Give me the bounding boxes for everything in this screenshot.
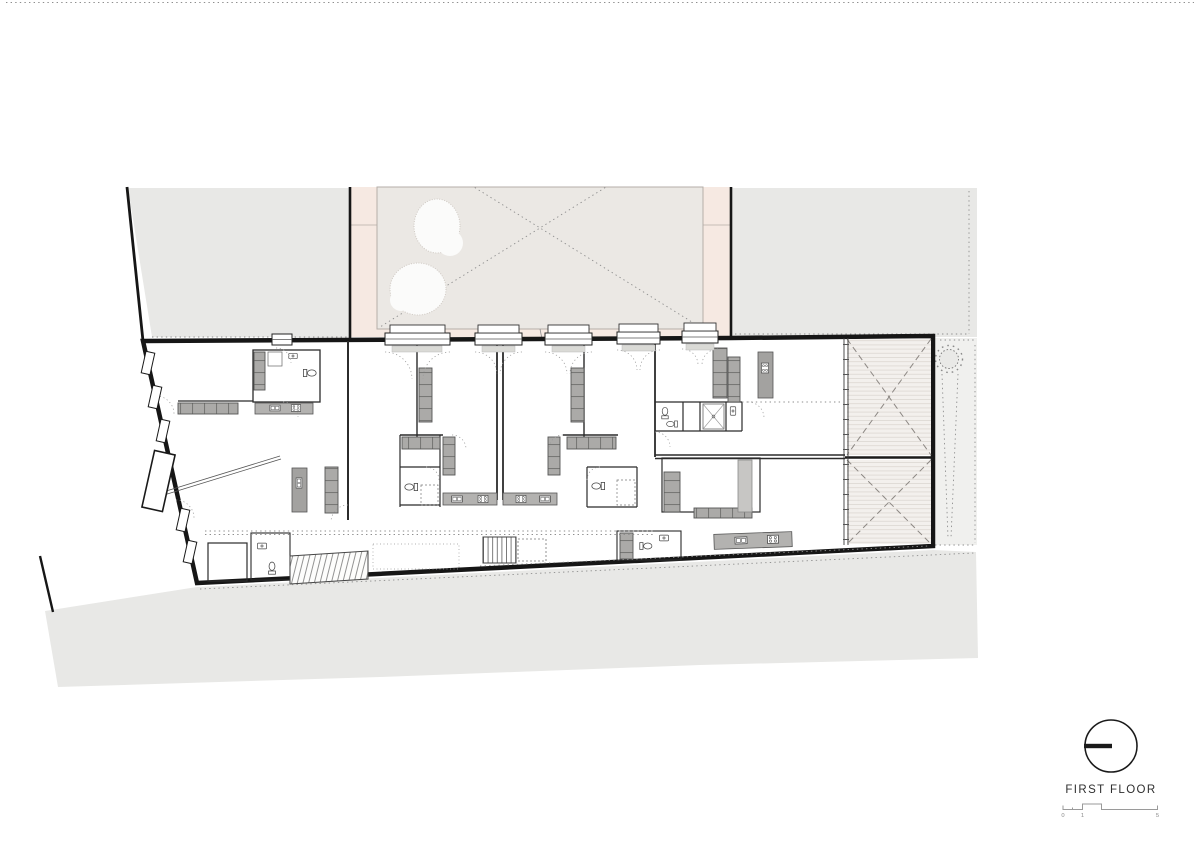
wardrobe <box>664 472 680 512</box>
terraces <box>844 338 933 545</box>
floor-label: FIRST FLOOR <box>1065 784 1156 796</box>
wardrobe <box>620 533 633 559</box>
basin-icon <box>289 353 298 358</box>
window-opening <box>545 325 592 352</box>
toilet-icon <box>405 483 418 490</box>
wardrobe-band <box>178 403 238 414</box>
scale-tick-0: 0 <box>1061 813 1064 819</box>
window-opening <box>682 323 718 350</box>
tall-cabinet <box>728 357 740 402</box>
kitchen-island <box>292 468 307 512</box>
basin-icon <box>730 407 735 416</box>
stair-secondary <box>483 537 516 563</box>
floor-indicator-icon <box>1084 720 1137 772</box>
kitchen-island <box>758 352 773 398</box>
tall-cabinet <box>325 467 338 513</box>
stair-main <box>290 551 368 584</box>
window-opening <box>617 324 660 351</box>
ground-bottom <box>45 550 978 687</box>
ground-top-left <box>128 188 350 337</box>
window-bay <box>142 450 175 511</box>
wardrobe <box>419 368 432 422</box>
toilet-icon <box>269 562 276 574</box>
floor-plan-canvas: FIRST FLOOR 0 1 5 <box>0 0 1200 849</box>
storage-column <box>738 460 752 512</box>
wardrobe-band <box>402 437 440 449</box>
window-opening <box>385 325 450 352</box>
toilet-icon <box>667 421 678 427</box>
toilet-icon <box>640 543 652 550</box>
toilet-icon <box>303 369 316 376</box>
window-opening <box>272 334 292 345</box>
wardrobe-band <box>567 437 616 449</box>
window-opening <box>475 325 522 352</box>
drawing-sheet: FIRST FLOOR 0 1 5 <box>0 0 1200 849</box>
ground-top-right <box>731 188 977 337</box>
scale-tick-5: 5 <box>1156 813 1159 819</box>
site-boundary-line-lower <box>40 556 53 612</box>
wardrobe <box>254 352 265 390</box>
scale-tick-1: 1 <box>1081 813 1084 819</box>
kitchen-counter <box>443 493 497 505</box>
side-yard-strip <box>933 338 977 545</box>
wardrobe <box>713 348 727 398</box>
wardrobe <box>571 368 584 422</box>
basin-icon <box>258 543 267 549</box>
kitchen-counter <box>255 403 313 414</box>
title-block: FIRST FLOOR 0 1 5 <box>1061 720 1159 819</box>
toilet-icon <box>592 482 605 489</box>
kitchen-counter <box>714 532 792 550</box>
courtyard <box>350 127 731 340</box>
toilet-icon <box>662 407 668 419</box>
building <box>141 323 933 584</box>
wardrobe <box>548 437 560 475</box>
wardrobe <box>443 437 455 475</box>
scale-bar: 0 1 5 <box>1061 804 1159 819</box>
basin-icon <box>660 535 669 541</box>
